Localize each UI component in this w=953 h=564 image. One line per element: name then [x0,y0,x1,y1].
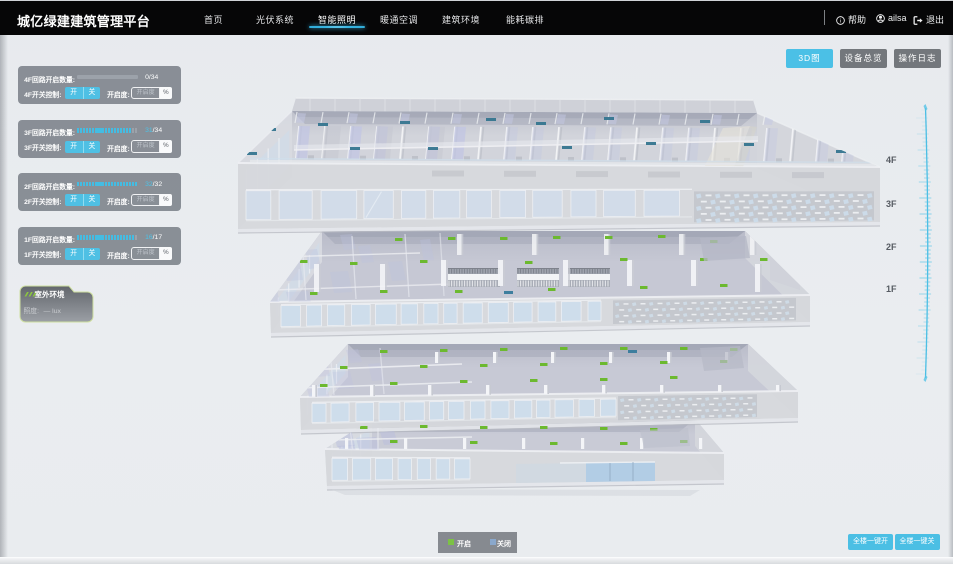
svg-text:室外环境: 室外环境 [35,289,65,299]
svg-text:i: i [840,18,841,24]
svg-text:— lux: — lux [44,308,62,315]
svg-text:照度:: 照度: [24,306,40,315]
